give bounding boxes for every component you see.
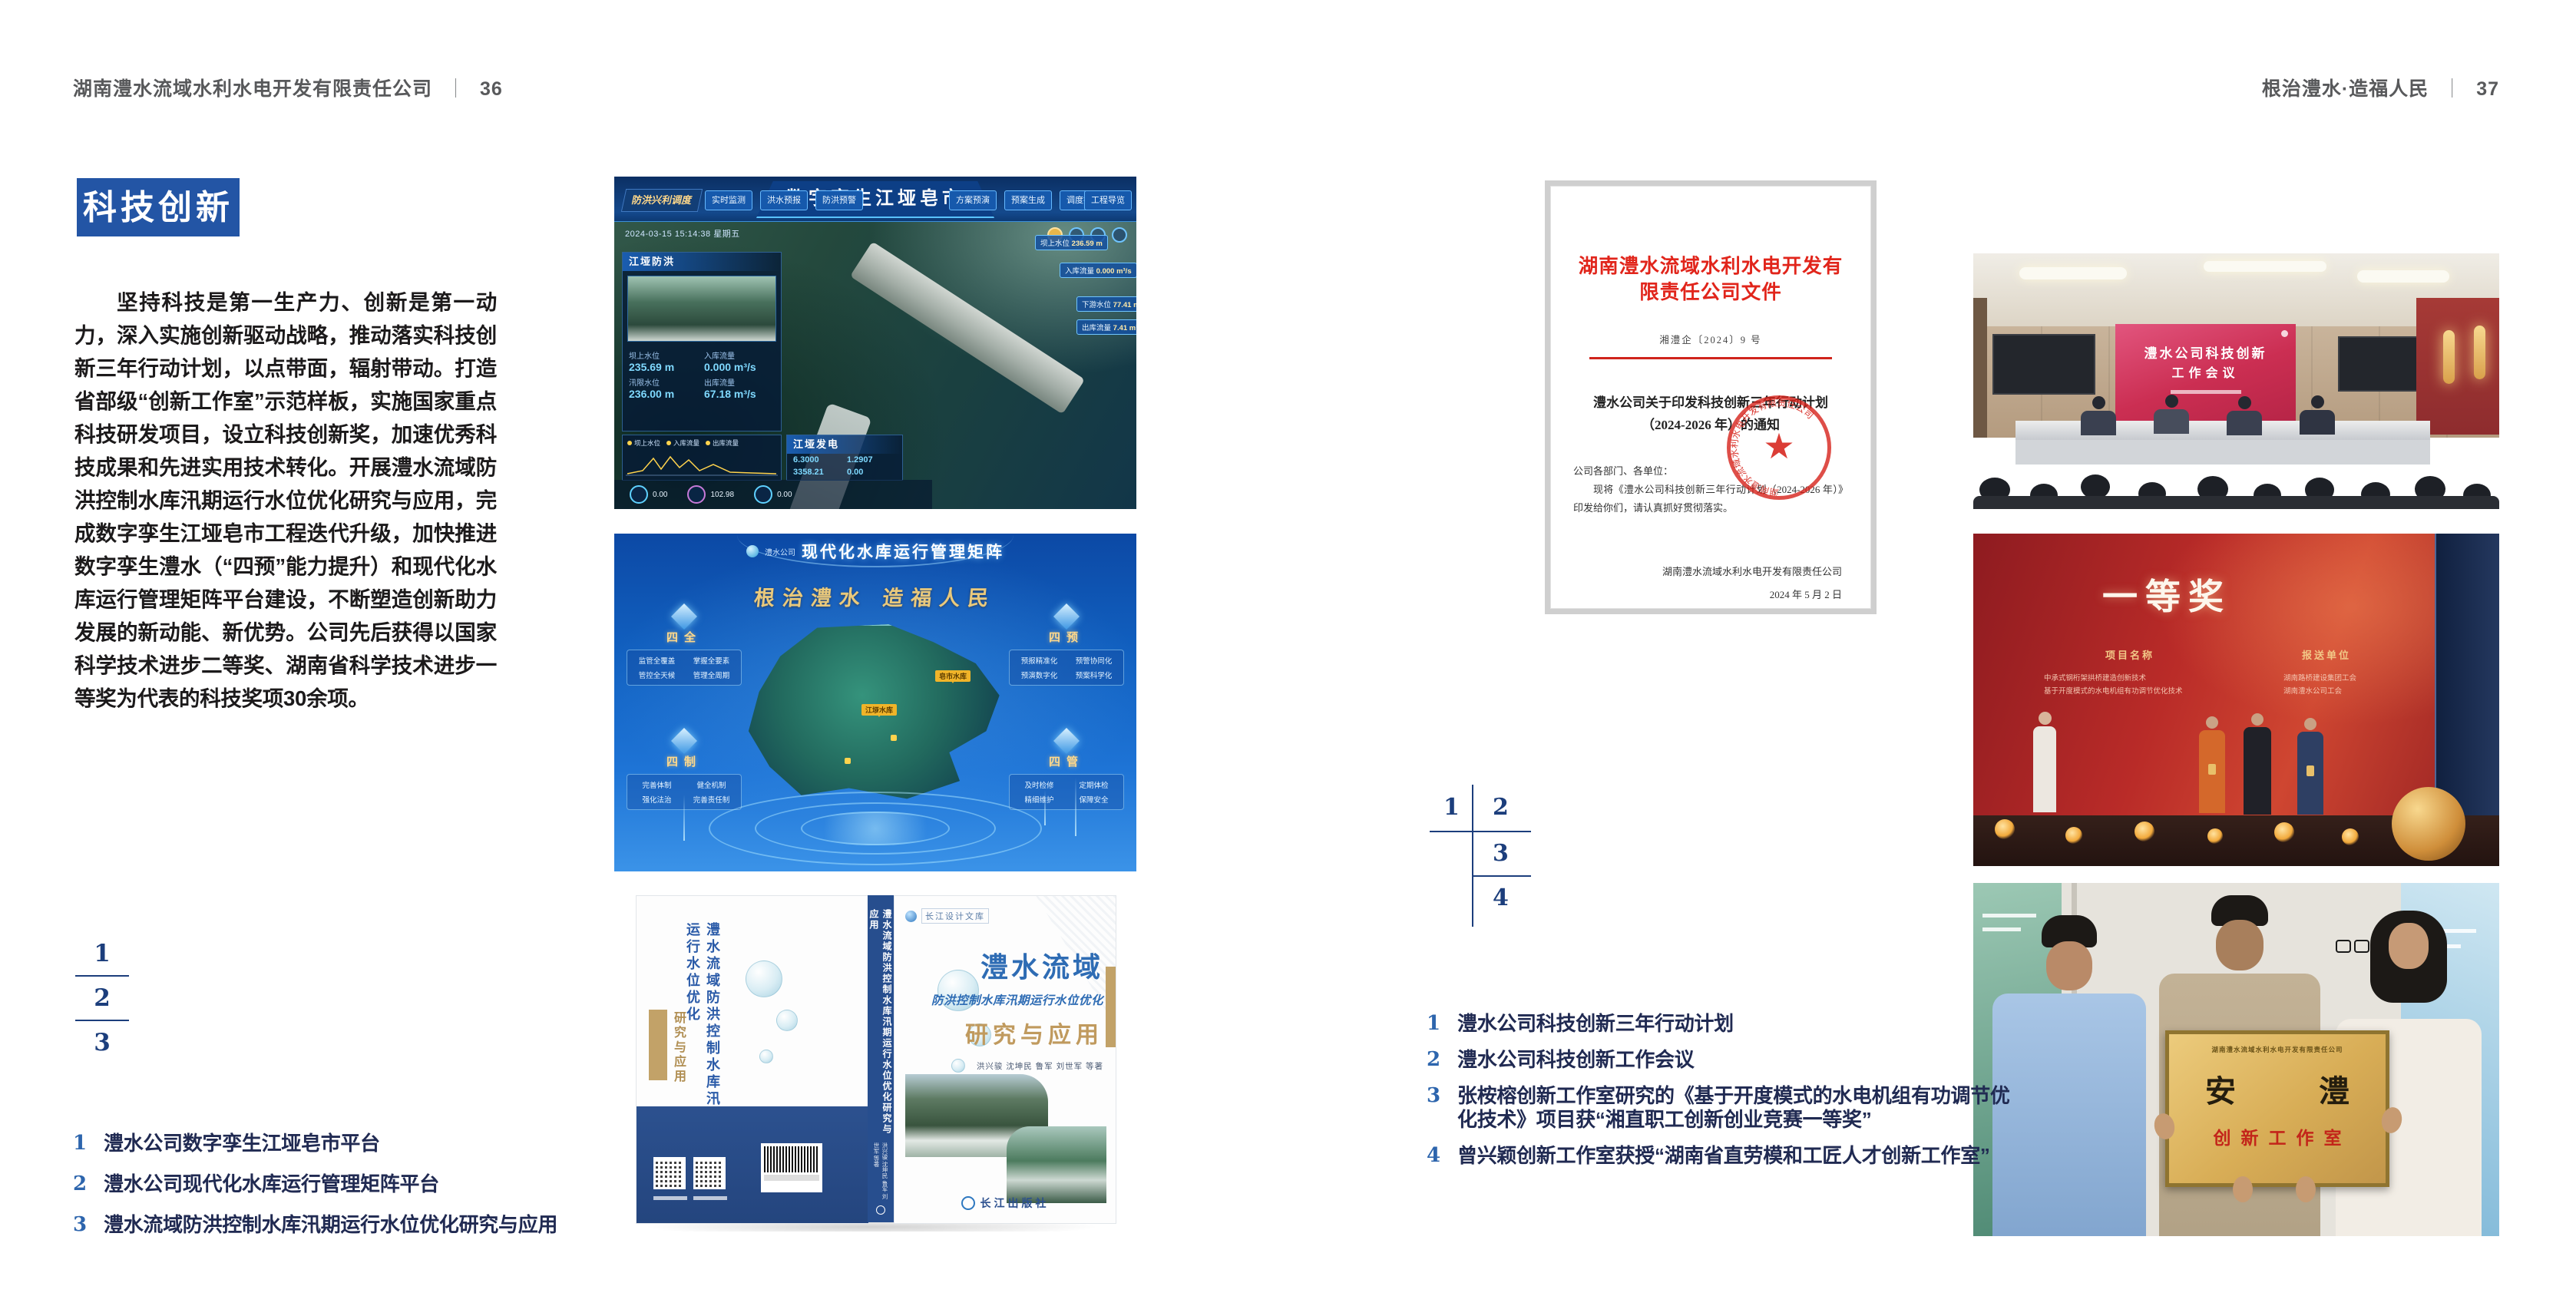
- seated-speaker: [2300, 395, 2335, 435]
- project-name: 中承式钢桁架拱桥建造创新技术: [2044, 672, 2236, 685]
- gauge-value: 0.00: [653, 491, 667, 499]
- page-header-left: 湖南澧水流域水利水电开发有限责任公司｜36: [73, 74, 503, 101]
- caption-row: 1 澧水公司科技创新三年行动计划: [1427, 1012, 2064, 1036]
- wall-screen-right: [2338, 336, 2422, 392]
- isbn-barcode: [761, 1143, 822, 1192]
- gauge-icon: [630, 485, 648, 504]
- seated-speaker: [2154, 395, 2189, 434]
- book-spine: 澧水流域防洪控制水库汛期运行水位优化研究与应用 洪兴骏 沈坤民 鲁军 刘世军 等…: [868, 895, 894, 1222]
- divider: [75, 1020, 129, 1021]
- book-title-subject: 防洪控制水库汛期运行水位优化: [931, 991, 1103, 1008]
- company-name: 湖南澧水流域水利水电开发有限责任公司: [73, 78, 432, 100]
- back-cover-title: 澧水流域防洪控制水库汛期运行水位优化: [683, 922, 723, 1129]
- figure-number: 2: [1493, 794, 1509, 821]
- project-rows: 中承式钢桁架拱桥建造创新技术 基于开度模式的水电机组有功调节优化技术: [2044, 672, 2236, 698]
- forecast-icon: [1053, 603, 1080, 630]
- panel-title: 江垭发电: [787, 435, 902, 454]
- stage-light: [1995, 819, 2015, 839]
- back-cover-subtitle: 研究与应用: [669, 1011, 687, 1103]
- stat-label: 汛限水位: [629, 376, 699, 388]
- node-items: 监管全覆盖 掌握全要素 管控全天候 管理全周期: [627, 650, 742, 686]
- tan-block: [649, 1010, 667, 1080]
- document-number: 湘澧企〔2024〕9 号: [1573, 332, 1848, 346]
- power-value: 1.2907: [847, 455, 896, 465]
- figure-matrix-platform: 澧水公司 现代化水库运行管理矩阵 根治澧水 造福人民 皂市水库 江垭水库 四全 …: [614, 534, 1136, 871]
- figure-book-cover: 澧水流域防洪控制水库汛期运行水位优化 研究与应用 澧水流域防洪控制水库汛期运行水…: [614, 883, 1136, 1236]
- power-value: 6.3000: [793, 455, 842, 465]
- node-item: 强化法治: [630, 794, 683, 805]
- node-item: 健全机制: [685, 779, 738, 790]
- stage-light: [2135, 822, 2154, 841]
- calligraphy-slogan: 根治澧水 造福人民: [752, 581, 998, 611]
- power-value: 3358.21: [793, 468, 842, 477]
- callout-chip: 下游水位 77.41 m: [1076, 296, 1136, 312]
- stat-label: 坝上水位: [629, 349, 699, 361]
- caption-number: 2: [73, 1172, 104, 1196]
- node-item: 完善责任制: [685, 794, 738, 805]
- qr-caption-bar: [693, 1196, 727, 1200]
- matrix-header: 澧水公司 现代化水库运行管理矩阵: [746, 540, 1004, 563]
- divider: [75, 975, 129, 977]
- stat-value: 236.00 m: [629, 388, 699, 400]
- gauge-icon: [687, 485, 706, 504]
- table-skirt: [2015, 440, 2430, 465]
- node-item: 完善体制: [630, 779, 683, 790]
- publisher-name: 长江出版社: [980, 1195, 1050, 1211]
- maintenance-icon: [1053, 728, 1080, 754]
- caption-text: 张桉榕创新工作室研究的《基于开度模式的水电机组有功调节优化技术》项目获“湘直职工…: [1457, 1084, 2025, 1132]
- ceiling-light: [2019, 267, 2127, 279]
- column-label-project: 项目名称: [2105, 647, 2154, 662]
- callout-chip: 坝上水位 236.59 m: [1035, 235, 1108, 250]
- bubble-decoration: [759, 1050, 773, 1063]
- wall-screen-left: [1992, 334, 2095, 395]
- stage-light: [2207, 828, 2223, 844]
- node-siquan: 四全 监管全覆盖 掌握全要素 管控全天候 管理全周期: [627, 607, 742, 686]
- node-item: 预案科学化: [1067, 670, 1120, 680]
- book-front-cover: 长江设计文库 澧水流域 防洪控制水库汛期运行水位优化 研究与应用 洪兴骏 沈坤民…: [894, 895, 1116, 1224]
- gauge-icon: [754, 485, 772, 504]
- institution-icon: [671, 728, 697, 754]
- node-title: 四制: [627, 753, 742, 769]
- caption-row: 3 张桉榕创新工作室研究的《基于开度模式的水电机组有功调节优化技术》项目获“湘直…: [1427, 1084, 2064, 1132]
- legend-item: 坝上水位: [627, 438, 660, 448]
- seated-speaker: [2227, 396, 2262, 435]
- node-title: 四预: [1009, 629, 1124, 645]
- magazine-spread: 湖南澧水流域水利水电开发有限责任公司｜36 根治澧水·造福人民｜37 科技创新 …: [0, 0, 2576, 1306]
- turbine-gauge-strip: 0.00 102.98 0.00: [614, 480, 932, 509]
- divider: [1430, 831, 1531, 832]
- light-streak: [1044, 790, 1046, 825]
- legend-item: 出库流量: [706, 438, 739, 448]
- back-cover-blue-band: [637, 1106, 868, 1223]
- unit-name: 湖南路桥建设集团工会: [2283, 672, 2437, 685]
- section-badge: 科技创新: [77, 178, 240, 236]
- map-dot-marker: [845, 758, 851, 764]
- node-title: 四管: [1009, 753, 1124, 769]
- audience-row: [1973, 496, 2499, 509]
- panel-title: 江垭防洪: [623, 253, 781, 271]
- gauge-value: 0.00: [777, 491, 792, 499]
- stat-value: 235.69 m: [629, 361, 699, 373]
- menu-realtime-monitor: 实时监测: [705, 190, 752, 210]
- dam-photo-small: [1007, 1126, 1106, 1203]
- plaque-name: 安 澧: [2169, 1066, 2386, 1111]
- award-headline: 一等奖: [2102, 569, 2231, 620]
- caption-number: 3: [1427, 1084, 1457, 1108]
- figure-number: 1: [1443, 794, 1460, 821]
- map-dot-marker: [891, 735, 897, 741]
- trophy-icon: [2306, 765, 2314, 776]
- water-level-line-chart: [623, 451, 781, 478]
- ceiling-light: [2204, 261, 2326, 272]
- node-item: 预报精准化: [1013, 655, 1066, 666]
- gauge-value: 102.98: [710, 491, 734, 499]
- flood-stats: 坝上水位235.69 m 入库流量0.000 m³/s 汛限水位236.00 m…: [623, 346, 781, 403]
- seated-speaker: [2081, 396, 2116, 435]
- trophy-icon: [2208, 764, 2216, 775]
- callout-chip: 入库流量 0.000 m³/s: [1060, 263, 1136, 278]
- library-label: 长江设计文库: [921, 908, 989, 924]
- qr-code: [693, 1157, 726, 1189]
- dam-photo-inset: [627, 276, 776, 342]
- document-date: 2024 年 5 月 2 日: [1573, 584, 1842, 607]
- figure-number: 1: [75, 938, 129, 969]
- caption-number: 1: [1427, 1012, 1457, 1036]
- node-item: 管控全天候: [630, 670, 683, 680]
- menu-plan-generate: 预案生成: [1004, 190, 1052, 210]
- figure-number-diagram-right: 1 2 3 4: [1430, 785, 1531, 927]
- node-item: 管理全周期: [685, 670, 738, 680]
- company-logo-text: 澧水公司: [765, 546, 795, 557]
- ripple-core: [801, 812, 950, 845]
- publisher-row: 长江出版社: [894, 1195, 1116, 1211]
- book-title-region: 澧水流域: [931, 945, 1103, 985]
- head-table: [2015, 421, 2430, 440]
- node-item: 预演数字化: [1013, 670, 1066, 680]
- stage-light: [2342, 828, 2359, 845]
- caption-number: 2: [1427, 1048, 1457, 1072]
- node-item: 精细维护: [1013, 794, 1066, 805]
- map-marker-zaoshi: 皂市水库: [935, 670, 971, 682]
- matrix-title: 现代化水库运行管理矩阵: [802, 540, 1004, 563]
- captions-right: 1 澧水公司科技创新三年行动计划 2 澧水公司科技创新工作会议 3 张桉榕创新工…: [1427, 1012, 2064, 1180]
- figure-number: 4: [1493, 884, 1509, 911]
- plaque-org-line: 湖南澧水流域水利水电开发有限责任公司: [2169, 1045, 2386, 1054]
- caption-number: 3: [73, 1213, 104, 1237]
- stat-value: 0.000 m³/s: [704, 361, 775, 373]
- page-number-right: 37: [2476, 78, 2499, 100]
- map-marker-jiangya: 江垭水库: [861, 704, 897, 716]
- callout-chip: 出库流量 7.41 m³/s: [1076, 319, 1136, 335]
- caption-text: 澧水公司科技创新工作会议: [1457, 1048, 1694, 1072]
- node-item: 监管全覆盖: [630, 655, 683, 666]
- divider: [1472, 785, 1473, 927]
- body-paragraph: 坚持科技是第一生产力、创新是第一动力，深入实施创新驱动战略，推动落实科技创新三年…: [74, 286, 497, 715]
- bubble-decoration: [776, 1010, 798, 1031]
- panel-jiangya-flood: 江垭防洪 坝上水位235.69 m 入库流量0.000 m³/s 汛限水位236…: [622, 252, 782, 431]
- wall-lamp-icon: [2474, 326, 2485, 379]
- book-back-cover: 澧水流域防洪控制水库汛期运行水位优化 研究与应用: [636, 895, 869, 1224]
- power-value: 0.00: [847, 468, 896, 477]
- menu-flood-forecast: 洪水预报: [760, 190, 808, 210]
- caption-text: 澧水公司数字孪生江垭皂市平台: [104, 1132, 380, 1156]
- book-title-main: 研究与应用: [931, 1016, 1103, 1050]
- screen-title-line2: 工作会议: [2115, 364, 2296, 384]
- company-logo-icon: [746, 545, 759, 557]
- globe-logo-icon: [905, 911, 917, 922]
- figure-digital-twin-platform: 数字孪生江垭皂市 防洪兴利调度 实时监测 洪水预报 防洪预警 方案预演 预案生成…: [614, 177, 1136, 509]
- node-items: 及时检修 定期体检 精细维护 保障安全: [1009, 774, 1124, 810]
- projection-screen: 澧水公司科技创新 工作会议: [2115, 324, 2296, 421]
- legend-item: 入库流量: [666, 438, 699, 448]
- page-number-left: 36: [480, 78, 503, 100]
- node-item: 及时检修: [1013, 779, 1066, 790]
- caption-text: 曾兴颖创新工作室获授“湖南省直劳模和工匠人才创新工作室”: [1457, 1144, 1990, 1168]
- spine-authors: 洪兴骏 沈坤民 鲁军 刘世军 等著: [872, 1142, 889, 1204]
- front-title-block: 澧水流域 防洪控制水库汛期运行水位优化 研究与应用 洪兴骏 沈坤民 鲁军 刘世军…: [931, 945, 1103, 1072]
- panel-jiangya-power: 江垭发电 6.3000 1.2907 3358.21 0.00: [786, 435, 903, 481]
- node-title: 四全: [627, 629, 742, 645]
- plaque-subtitle: 创新工作室: [2169, 1123, 2386, 1149]
- header-separator: ｜: [446, 78, 466, 100]
- screen-title-line1: 澧水公司科技创新: [2115, 344, 2296, 364]
- gold-sphere-decoration: [2392, 787, 2465, 861]
- node-siyu: 四预 预报精准化 预警协同化 预演数字化 预案科学化: [1009, 607, 1124, 686]
- monitor-icon: [671, 603, 697, 630]
- stage-light: [2274, 822, 2294, 842]
- menu-project-tour: 工程导览: [1084, 190, 1132, 210]
- page-header-right: 根治澧水·造福人民｜37: [2262, 74, 2499, 101]
- figure-number-list-left: 1 2 3: [75, 938, 129, 1058]
- column-label-unit: 报送单位: [2302, 647, 2351, 662]
- node-items: 预报精准化 预警协同化 预演数字化 预案科学化: [1009, 650, 1124, 686]
- document-letterhead: 湖南澧水流域水利水电开发有限责任公司文件: [1573, 253, 1848, 306]
- innovation-studio-plaque: 湖南澧水流域水利水电开发有限责任公司 安 澧 创新工作室: [2165, 1030, 2389, 1187]
- hand: [2296, 1176, 2316, 1202]
- left-wall: [1973, 298, 1987, 438]
- panel-water-level-chart: 坝上水位 入库流量 出库流量: [622, 435, 782, 481]
- figure-number: 3: [75, 1027, 129, 1058]
- red-rule: [1589, 357, 1831, 359]
- library-logo-row: 长江设计文库: [905, 908, 989, 924]
- signer-name: 湖南澧水流域水利水电开发有限责任公司: [1573, 560, 1842, 584]
- right-red-wall: [2416, 298, 2499, 435]
- chart-legend: 坝上水位 入库流量 出库流量: [623, 435, 781, 451]
- caption-text: 澧水公司科技创新三年行动计划: [1457, 1012, 1734, 1036]
- document-page: 湖南澧水流域水利水电开发有限责任公司文件 湘澧企〔2024〕9 号 澧水公司关于…: [1550, 186, 1871, 609]
- screen-logo-icon: [2281, 330, 2288, 337]
- signature-block: 湖南澧水流域水利水电开发有限责任公司 2024 年 5 月 2 日: [1573, 560, 1848, 607]
- screen-date-bar: [2171, 390, 2241, 394]
- alert-icon: [1112, 227, 1127, 243]
- figure-official-document: 湖南澧水流域水利水电开发有限责任公司文件 湘澧企〔2024〕9 号 澧水公司关于…: [1545, 180, 1877, 614]
- slogan-text: 根治澧水·造福人民: [2262, 78, 2429, 100]
- stat-label: 出库流量: [704, 376, 775, 388]
- light-streak: [1075, 778, 1076, 836]
- unit-name: 湖南澧水公司工会: [2283, 685, 2437, 698]
- figure-number: 3: [1493, 840, 1509, 867]
- hand: [2233, 1176, 2253, 1202]
- caption-row: 4 曾兴颖创新工作室获授“湖南省直劳模和工匠人才创新工作室”: [1427, 1144, 2064, 1168]
- ceiling-light: [2357, 270, 2449, 283]
- tab-flood-dispatch: 防洪兴利调度: [621, 189, 703, 212]
- caption-row: 2 澧水公司科技创新工作会议: [1427, 1048, 2064, 1072]
- book-authors: 洪兴骏 沈坤民 鲁军 刘世军 等著: [931, 1060, 1103, 1072]
- figure-meeting-photo: 澧水公司科技创新 工作会议: [1973, 253, 2499, 509]
- menu-flood-warning: 防洪预警: [815, 190, 863, 210]
- publisher-logo-icon: [961, 1196, 975, 1210]
- node-siguan: 四管 及时检修 定期体检 精细维护 保障安全: [1009, 732, 1124, 810]
- timestamp: 2024-03-15 15:14:38 星期五: [625, 227, 740, 240]
- caption-text: 澧水公司现代化水库运行管理矩阵平台: [104, 1172, 439, 1196]
- menu-plan-rehearsal: 方案预演: [949, 190, 997, 210]
- stat-label: 入库流量: [704, 349, 775, 361]
- publisher-mark-icon: [876, 1205, 885, 1215]
- stage-light: [2065, 827, 2082, 844]
- wall-lamp-icon: [2443, 330, 2455, 384]
- unit-rows: 湖南路桥建设集团工会 湖南澧水公司工会: [2283, 672, 2437, 698]
- header-separator: ｜: [2442, 78, 2462, 100]
- divider: [1472, 875, 1531, 877]
- light-streak: [683, 795, 685, 841]
- figure-number: 2: [75, 983, 129, 1013]
- bubble-decoration: [746, 960, 782, 997]
- seal-star-icon: ★: [1763, 425, 1794, 467]
- node-item: 掌握全要素: [685, 655, 738, 666]
- node-item: 预警协同化: [1067, 655, 1120, 666]
- awardee-suit-figure: [2244, 713, 2271, 815]
- caption-number: 4: [1427, 1144, 1457, 1168]
- figure-award-ceremony-photo: 一等奖 项目名称 报送单位 中承式钢桁架拱桥建造创新技术 基于开度模式的水电机组…: [1973, 534, 2499, 866]
- caption-text: 澧水流域防洪控制水库汛期运行水位优化研究与应用: [104, 1213, 557, 1237]
- tan-edge-bar: [1106, 967, 1116, 1047]
- presenter-figure: [2033, 712, 2056, 812]
- official-seal: 湖南澧水流域水利水电开发有限责任公司 ★: [1727, 395, 1831, 500]
- caption-number: 1: [73, 1132, 104, 1156]
- qr-caption-bar: [653, 1196, 687, 1200]
- glasses-icon: [2336, 940, 2482, 953]
- project-name: 基于开度模式的水电机组有功调节优化技术: [2044, 685, 2236, 698]
- spine-title: 澧水流域防洪控制水库汛期运行水位优化研究与应用: [868, 909, 894, 1139]
- stat-value: 67.18 m³/s: [704, 388, 775, 400]
- qr-code: [653, 1157, 686, 1189]
